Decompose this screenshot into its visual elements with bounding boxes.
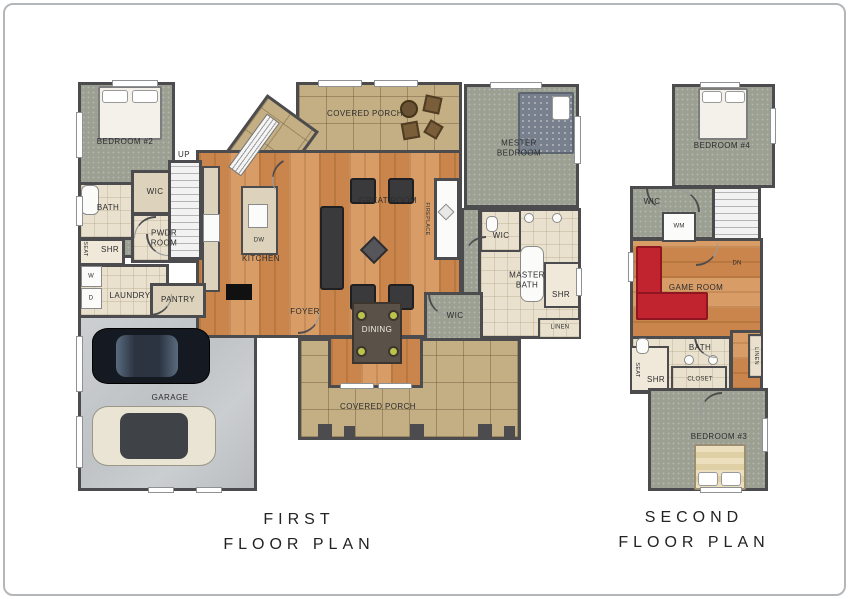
porch-pillar xyxy=(504,426,515,437)
sink-icon xyxy=(684,355,694,365)
sink-icon xyxy=(552,213,562,223)
porch-pillar xyxy=(410,424,424,438)
label-washer: W xyxy=(88,273,94,280)
oven-icon xyxy=(226,284,252,300)
sectional-sofa-icon xyxy=(636,292,708,320)
window xyxy=(762,418,768,452)
dining-chair-icon xyxy=(388,346,399,357)
label-dw: DW xyxy=(254,237,264,244)
window xyxy=(576,268,582,296)
garage-door-opening xyxy=(148,487,174,493)
first-floor-title: FIRST FLOOR PLAN xyxy=(223,508,374,558)
label-foyer: FOYER xyxy=(290,307,320,317)
sink-icon xyxy=(524,213,534,223)
patio-chair-icon xyxy=(422,94,442,114)
label-bedroom2: BEDROOM #2 xyxy=(97,137,153,147)
label-seat: SEAT xyxy=(82,241,88,256)
label-seat-2: SEAT xyxy=(634,362,640,377)
porch-pillar xyxy=(478,424,492,438)
toilet-icon xyxy=(636,338,649,354)
label-bath-2: BATH xyxy=(689,343,711,353)
first-floor-title-line2: FLOOR PLAN xyxy=(223,533,374,558)
label-laundry: LAUNDRY xyxy=(110,291,151,301)
window xyxy=(76,112,83,158)
label-pantry: PANTRY xyxy=(161,295,195,305)
second-floor-title: SECOND FLOOR PLAN xyxy=(618,506,769,556)
label-shr: SHR xyxy=(101,245,119,255)
label-covered-porch-top: COVERED PORCH xyxy=(327,109,403,119)
label-dining: DINING xyxy=(362,325,392,335)
first-floor-title-line1: FIRST xyxy=(223,508,374,533)
pillow-icon xyxy=(702,91,722,103)
range-icon xyxy=(203,214,220,242)
sofa-icon xyxy=(320,206,344,290)
window xyxy=(700,82,740,88)
porch-pillar xyxy=(344,426,355,437)
label-dryer: D xyxy=(89,295,94,302)
window xyxy=(340,383,374,389)
window xyxy=(770,108,776,144)
pillow-icon xyxy=(698,472,718,486)
label-bedroom4: BEDROOM #4 xyxy=(694,141,750,151)
label-game-room: GAME ROOM xyxy=(669,283,723,293)
dining-chair-icon xyxy=(356,310,367,321)
garage-door-opening xyxy=(196,487,222,493)
label-shr-master: SHR xyxy=(552,290,570,300)
label-wic-2: WIC xyxy=(644,197,661,207)
label-fireplace: FIREPLACE xyxy=(424,202,430,235)
label-linen: LINEN xyxy=(551,324,570,331)
label-pwdr-room: PWDR ROOM xyxy=(145,228,183,247)
label-shr-2: SHR xyxy=(647,375,665,385)
car-dark-glass-icon xyxy=(116,335,178,377)
window xyxy=(574,116,581,164)
label-closet: CLOSET xyxy=(687,376,712,383)
pillow-icon xyxy=(552,96,570,120)
window xyxy=(318,80,362,87)
label-linen-2: LINEN xyxy=(753,347,759,365)
window xyxy=(76,196,83,226)
window xyxy=(76,336,83,392)
label-bedroom3: BEDROOM #3 xyxy=(691,432,747,442)
second-floor-title-line1: SECOND xyxy=(618,506,769,531)
second-floor-title-line2: FLOOR PLAN xyxy=(618,531,769,556)
label-up: UP xyxy=(178,150,190,160)
window xyxy=(374,80,418,87)
label-wic-master: WIC xyxy=(493,231,510,241)
label-wm: WM xyxy=(673,223,684,230)
window xyxy=(378,383,412,389)
pillow-icon xyxy=(721,472,741,486)
dining-chair-icon xyxy=(388,310,399,321)
label-kitchen: KITCHEN xyxy=(242,254,280,264)
island-sink-icon xyxy=(248,204,268,228)
label-covered-porch-bottom: COVERED PORCH xyxy=(340,402,416,412)
window xyxy=(490,82,542,89)
label-great-room: GREAT ROOM xyxy=(359,196,417,206)
porch-pillar xyxy=(318,424,332,438)
label-garage: GARAGE xyxy=(152,393,189,403)
window xyxy=(76,416,83,468)
toilet-icon xyxy=(486,216,498,232)
label-wic-dining: WIC xyxy=(447,311,464,321)
dining-chair-icon xyxy=(356,346,367,357)
label-master-bath: MASTER BATH xyxy=(503,270,551,289)
window xyxy=(112,80,158,87)
pillow-icon xyxy=(132,90,158,103)
label-dn: DN xyxy=(732,260,741,267)
pillow-icon xyxy=(725,91,745,103)
pillow-icon xyxy=(102,90,128,103)
window xyxy=(700,487,742,493)
patio-chair-icon xyxy=(401,121,421,141)
window xyxy=(628,252,634,282)
label-wic-hall: WIC xyxy=(147,187,164,197)
label-bath: BATH xyxy=(97,203,119,213)
floor-plan-image: BEDROOM #2 WIC BATH SEAT SHR PWDR ROOM W… xyxy=(0,0,849,599)
label-mester-bedroom: MESTER BEDROOM xyxy=(490,138,548,157)
car-cream-glass-icon xyxy=(120,413,188,459)
